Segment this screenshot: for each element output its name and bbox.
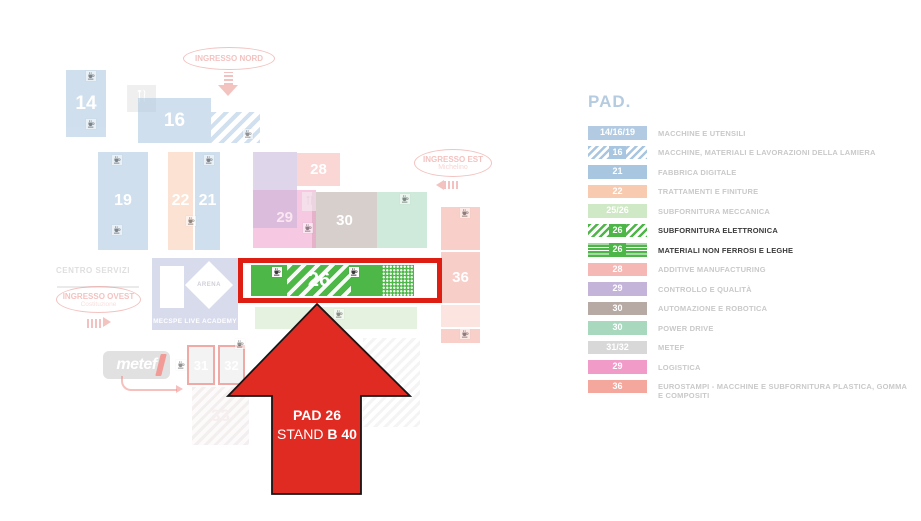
legend-item-label: AUTOMAZIONE E ROBOTICA bbox=[658, 302, 767, 314]
stand-highlight-rectangle bbox=[238, 258, 442, 303]
legend-item-label: SUBFORNITURA MECCANICA bbox=[658, 204, 770, 216]
legend-swatch-code: 31/32 bbox=[603, 341, 632, 355]
callout-pad-label: PAD 26 bbox=[252, 406, 382, 425]
pavilion-16-label: 16 bbox=[164, 110, 185, 132]
legend-swatch: 30 bbox=[588, 302, 647, 316]
fork-knife-icon bbox=[136, 89, 147, 108]
pavilion-28-label: 28 bbox=[310, 161, 327, 178]
legend-item-label: SUBFORNITURA ELETTRONICA bbox=[658, 224, 778, 236]
legend-swatch: 29 bbox=[588, 282, 647, 296]
legend-swatch-code: 26 bbox=[609, 243, 625, 257]
legend-item: 28ADDITIVE MANUFACTURING bbox=[588, 263, 918, 277]
coffee-cup-icon bbox=[349, 267, 359, 277]
entrance-nord-label: INGRESSO NORD bbox=[195, 54, 263, 63]
coffee-cup-icon bbox=[243, 129, 253, 139]
legend-item: 16MACCHINE, MATERIALI E LAVORAZIONI DELL… bbox=[588, 146, 918, 160]
coffee-cup-icon bbox=[112, 225, 122, 235]
entrance-est: INGRESSO EST Michelino bbox=[414, 149, 492, 177]
legend-item: 30POWER DRIVE bbox=[588, 321, 918, 335]
pavilion-19-label: 19 bbox=[114, 192, 132, 210]
metef-arrow bbox=[121, 376, 177, 391]
entrance-est-arrow bbox=[444, 181, 460, 189]
coffee-cup-icon bbox=[204, 155, 214, 165]
legend-item-label: POWER DRIVE bbox=[658, 321, 714, 333]
metef-logo-label: metef bbox=[116, 356, 156, 374]
legend-swatch: 21 bbox=[588, 165, 647, 179]
coffee-cup-icon bbox=[86, 71, 96, 81]
legend-item: 22TRATTAMENTI E FINITURE bbox=[588, 185, 918, 199]
callout-stand-number: B 40 bbox=[327, 426, 357, 442]
legend-swatch-code: 28 bbox=[609, 263, 625, 277]
legend-swatch-code: 36 bbox=[609, 380, 625, 394]
coffee-cup-icon bbox=[272, 267, 282, 277]
legend-swatch: 30 bbox=[588, 321, 647, 335]
pavilion-21-label: 21 bbox=[199, 192, 217, 210]
legend-item: 29CONTROLLO E QUALITÀ bbox=[588, 282, 918, 296]
legend-swatch: 25/26 bbox=[588, 204, 647, 218]
legend-item: 21FABBRICA DIGITALE bbox=[588, 165, 918, 179]
legend-title: PAD. bbox=[588, 92, 918, 112]
legend-swatch: 22 bbox=[588, 185, 647, 199]
entrance-est-sublabel: Michelino bbox=[438, 164, 468, 171]
legend-item-label: MACCHINE E UTENSILI bbox=[658, 126, 746, 138]
pavilion-30-label: 30 bbox=[336, 212, 353, 229]
pavilion-31-label: 31 bbox=[194, 358, 208, 373]
entrance-nord-arrow bbox=[224, 72, 233, 85]
pavilion-31: 31 bbox=[187, 345, 215, 385]
entrance-ovest-label: INGRESSO OVEST bbox=[63, 292, 135, 301]
legend-swatch-code: 29 bbox=[609, 282, 625, 296]
entrance-est-label: INGRESSO EST bbox=[423, 155, 483, 164]
entrance-ovest-arrow bbox=[87, 319, 103, 328]
pavilion-36-light-section bbox=[441, 305, 480, 327]
legend-swatch-code: 16 bbox=[609, 146, 625, 160]
legend-swatch-code: 30 bbox=[609, 321, 625, 335]
pavilion-19: 19 bbox=[98, 152, 148, 250]
coffee-cup-icon bbox=[112, 155, 122, 165]
pavilion-22-label: 22 bbox=[172, 192, 190, 210]
pavilion-21: 21 bbox=[195, 152, 220, 250]
entrance-nord-arrow-head-icon bbox=[218, 85, 238, 96]
legend-swatch-code: 14/16/19 bbox=[597, 126, 638, 140]
legend-swatch-code: 29 bbox=[609, 360, 625, 374]
callout-text: PAD 26 STAND B 40 bbox=[252, 406, 382, 444]
fair-map-page: INGRESSO NORD 14 16 19 22 21 bbox=[0, 0, 921, 521]
restaurant-block-small bbox=[302, 192, 316, 211]
legend-item: 25/26SUBFORNITURA MECCANICA bbox=[588, 204, 918, 218]
pavilion-14-label: 14 bbox=[75, 93, 96, 115]
coffee-cup-icon bbox=[460, 329, 470, 339]
arena-area: ARENA bbox=[192, 268, 226, 302]
legend-item-label: FABBRICA DIGITALE bbox=[658, 165, 736, 177]
pavilion-30: 30 bbox=[312, 192, 377, 248]
entrance-ovest-sublabel: Costituzione bbox=[81, 301, 117, 308]
map: INGRESSO NORD 14 16 19 22 21 bbox=[0, 0, 560, 521]
legend-swatch-code: 26 bbox=[609, 224, 625, 238]
legend-item-label: TRATTAMENTI E FINITURE bbox=[658, 185, 758, 197]
coffee-cup-icon bbox=[460, 208, 470, 218]
legend-item: 31/32METEF bbox=[588, 341, 918, 355]
legend-swatch: 26 bbox=[588, 224, 647, 238]
entrance-ovest-arrow-head-icon bbox=[103, 317, 111, 327]
legend-item-label: MATERIALI NON FERROSI E LEGHE bbox=[658, 243, 793, 255]
coffee-cup-icon bbox=[400, 194, 410, 204]
entrance-est-arrow-head-icon bbox=[436, 180, 444, 190]
fork-knife-icon bbox=[306, 193, 313, 211]
legend-swatch-code: 21 bbox=[609, 165, 625, 179]
legend-item: 26SUBFORNITURA ELETTRONICA bbox=[588, 224, 918, 238]
legend-swatch: 31/32 bbox=[588, 341, 647, 355]
coffee-cup-icon bbox=[86, 119, 96, 129]
legend-swatch-code: 25/26 bbox=[603, 204, 632, 218]
metef-logo: metef bbox=[103, 351, 170, 379]
legend-swatch: 14/16/19 bbox=[588, 126, 647, 140]
coffee-cup-icon bbox=[303, 223, 313, 233]
callout-stand-label: STAND B 40 bbox=[252, 425, 382, 444]
legend-swatch-code: 22 bbox=[609, 185, 625, 199]
metef-arrow-head-icon bbox=[176, 385, 183, 393]
restaurant-block bbox=[127, 85, 156, 112]
legend-item-label: MACCHINE, MATERIALI E LAVORAZIONI DELLA … bbox=[658, 146, 876, 158]
academy-white-area bbox=[160, 266, 184, 308]
callout-arrow bbox=[220, 300, 420, 500]
legend-item: 14/16/19MACCHINE E UTENSILI bbox=[588, 126, 918, 140]
legend-items: 14/16/19MACCHINE E UTENSILI16MACCHINE, M… bbox=[588, 126, 918, 400]
legend-swatch-code: 30 bbox=[609, 302, 625, 316]
callout-stand-prefix: STAND bbox=[277, 426, 327, 442]
legend-swatch: 26 bbox=[588, 243, 647, 257]
legend-item: 30AUTOMAZIONE E ROBOTICA bbox=[588, 302, 918, 316]
pavilion-28: 28 bbox=[297, 153, 340, 186]
arena-label: ARENA bbox=[192, 268, 226, 302]
legend-item-label: METEF bbox=[658, 341, 684, 353]
entrance-nord: INGRESSO NORD bbox=[183, 47, 275, 70]
entrance-ovest: INGRESSO OVEST Costituzione bbox=[56, 286, 141, 313]
pavilion-22: 22 bbox=[168, 152, 193, 250]
legend-swatch: 16 bbox=[588, 146, 647, 160]
coffee-cup-icon bbox=[186, 216, 196, 226]
coffee-cup-icon bbox=[176, 360, 186, 370]
centro-servizi-label: CENTRO SERVIZI bbox=[56, 266, 130, 275]
legend-swatch: 28 bbox=[588, 263, 647, 277]
legend-item-label: ADDITIVE MANUFACTURING bbox=[658, 263, 766, 275]
pavilion-36-label: 36 bbox=[452, 269, 469, 286]
legend-item: 29LOGISTICA bbox=[588, 360, 918, 374]
legend-item-label: EUROSTAMPI - MACCHINE E SUBFORNITURA PLA… bbox=[658, 380, 908, 401]
legend-swatch: 36 bbox=[588, 380, 647, 394]
legend-swatch: 29 bbox=[588, 360, 647, 374]
legend-item-label: CONTROLLO E QUALITÀ bbox=[658, 282, 752, 294]
legend: PAD. 14/16/19MACCHINE E UTENSILI16MACCHI… bbox=[588, 92, 918, 406]
pavilion-36: 36 bbox=[441, 252, 480, 303]
legend-item-label: LOGISTICA bbox=[658, 360, 701, 372]
legend-item: 26MATERIALI NON FERROSI E LEGHE bbox=[588, 243, 918, 257]
legend-item: 36EUROSTAMPI - MACCHINE E SUBFORNITURA P… bbox=[588, 380, 918, 401]
